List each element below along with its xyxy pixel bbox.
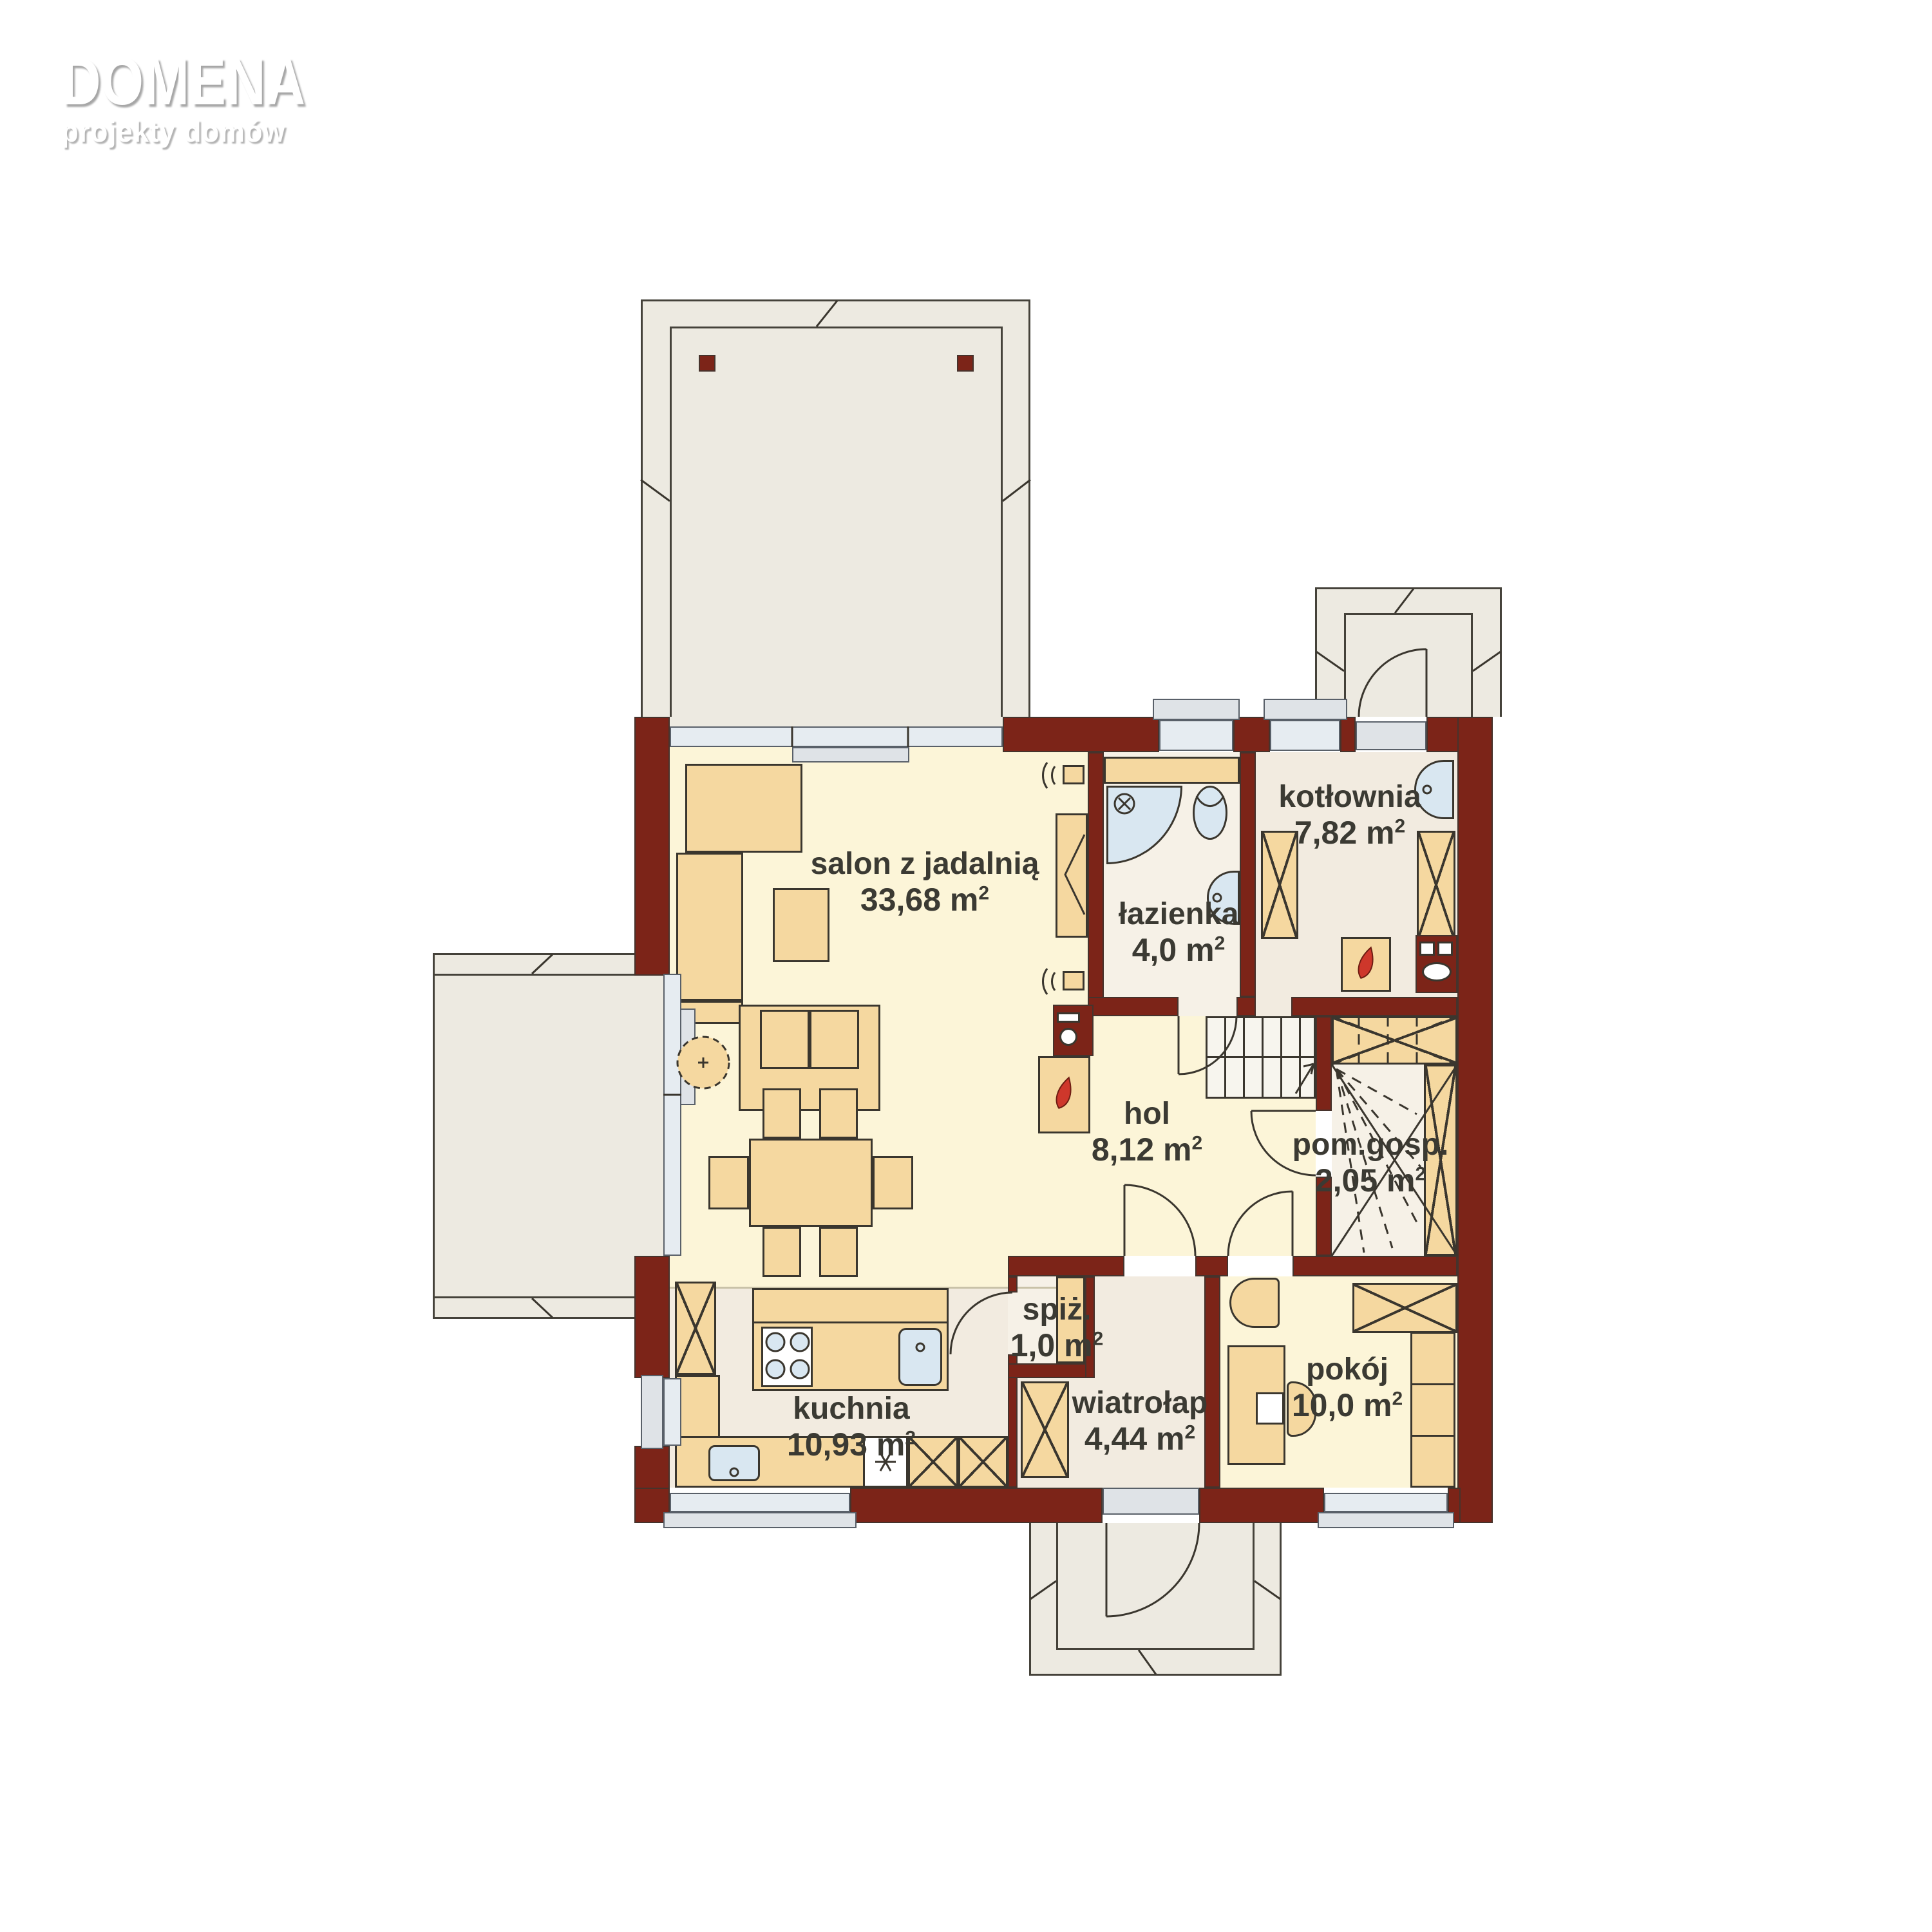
porch-entry-inner — [1056, 1523, 1255, 1650]
fireplace-hearth — [1038, 1056, 1090, 1133]
stairs-midline — [1206, 1056, 1316, 1058]
dining-chair — [819, 1227, 858, 1277]
flue-box — [1419, 942, 1435, 956]
window-sill — [641, 1375, 663, 1449]
wall-interior — [1316, 1016, 1332, 1111]
wall-exterior — [1340, 717, 1356, 752]
speaker — [1063, 971, 1084, 990]
wall-interior — [1195, 1256, 1228, 1276]
sofa-line — [1410, 1435, 1455, 1437]
brand-tagline: projekty domów — [61, 117, 344, 146]
flue-box — [1437, 942, 1453, 956]
dining-chair — [819, 1088, 858, 1139]
wall-interior — [1008, 1276, 1018, 1293]
terrace-door-patch — [670, 717, 1003, 727]
boiler-stove — [1341, 937, 1391, 992]
dining-chair — [873, 1156, 913, 1209]
room-label-salon: salon z jadalnią 33,68 m2 — [811, 847, 1039, 918]
window-sill — [1318, 1512, 1454, 1528]
wall-exterior — [850, 1488, 1103, 1523]
window-sliding-salon — [670, 726, 1003, 747]
window-sill — [1153, 699, 1240, 720]
window-pokoj — [1324, 1493, 1448, 1512]
toilet — [1193, 786, 1227, 840]
wall-interior — [1008, 1256, 1124, 1276]
room-label-kuchnia: kuchnia 10,93 m2 — [787, 1392, 916, 1463]
wall-exterior — [634, 1256, 670, 1378]
hob — [761, 1327, 813, 1387]
speaker — [1063, 765, 1084, 784]
fireplace-flue — [1059, 1028, 1077, 1046]
porch-boiler-entry-inner — [1344, 613, 1473, 717]
entry-threshold — [1103, 1488, 1199, 1515]
floor-plan: salon z jadalnią 33,68 m2 łazienka 4,0 m… — [0, 0, 1932, 1932]
terrace-side-line — [433, 1296, 634, 1298]
wall-interior — [1008, 1363, 1095, 1378]
room-label-wiatrolap: wiatrołap 4,44 m2 — [1072, 1386, 1208, 1457]
brand-name: DOMENA — [61, 48, 305, 115]
dining-chair — [708, 1156, 749, 1209]
window-sliding-panel — [680, 1009, 696, 1105]
terrace-post — [699, 355, 715, 372]
logo: DOMENA projekty domów — [61, 48, 359, 146]
wall-exterior — [1003, 717, 1159, 752]
window-kotlownia — [1270, 720, 1340, 751]
wall-exterior — [634, 717, 670, 976]
monitor — [1256, 1392, 1284, 1425]
bath-counter — [1104, 757, 1240, 784]
boiler-entry-threshold — [1356, 721, 1426, 750]
terrace-top-inner — [670, 327, 1003, 717]
room-label-kotlownia: kotłownia 7,82 m2 — [1278, 780, 1421, 851]
dining-table — [749, 1139, 873, 1227]
terrace-side-line — [433, 974, 634, 976]
terrace-post — [957, 355, 974, 372]
floor-wiatrolap — [1095, 1276, 1204, 1378]
wall-interior — [1293, 1256, 1457, 1276]
island-line — [752, 1321, 949, 1323]
wardrobe — [1021, 1381, 1069, 1478]
tv-cabinet — [1056, 813, 1088, 938]
water-tank — [1417, 831, 1455, 939]
dining-chair — [762, 1088, 801, 1139]
sofa-pokoj — [1410, 1332, 1455, 1488]
corner-sofa — [676, 853, 743, 1001]
wall-exterior — [1457, 717, 1493, 1523]
wall-interior — [1088, 752, 1104, 1005]
window-sill — [1264, 699, 1347, 720]
door-threshold-kotlownia — [1256, 997, 1291, 1016]
kitchen-cabinet — [958, 1436, 1008, 1488]
terrace-side — [433, 953, 634, 1319]
sink — [708, 1445, 760, 1481]
sofa-cushion — [760, 1010, 810, 1069]
fireplace-vent — [1057, 1012, 1080, 1023]
room-label-pokoj: pokój 10,0 m2 — [1292, 1352, 1403, 1423]
room-label-hol: hol 8,12 m2 — [1092, 1097, 1202, 1168]
sofa-line — [1410, 1383, 1455, 1385]
dining-chair — [762, 1227, 801, 1277]
room-label-lazienka: łazienka 4,0 m2 — [1119, 897, 1239, 968]
wardrobe — [1352, 1283, 1457, 1333]
stair-flight-upper — [1332, 1016, 1457, 1065]
armchair — [1229, 1278, 1280, 1328]
sink — [898, 1328, 942, 1386]
window-sill — [663, 1512, 857, 1528]
window-kuchnia-left — [663, 1378, 681, 1446]
terrace-door-patch — [634, 974, 663, 1256]
wall-exterior — [1233, 717, 1270, 752]
fridge — [675, 1282, 716, 1375]
wall-exterior — [1199, 1488, 1324, 1523]
wall-interior — [1236, 997, 1256, 1016]
window-sliding-terrace — [663, 974, 681, 1256]
room-label-spiz: spiż. 1,0 m2 — [1010, 1293, 1104, 1363]
door-threshold-lazienka — [1179, 997, 1236, 1016]
wall-interior — [1240, 752, 1256, 997]
sofa-cushion — [810, 1010, 859, 1069]
flue-round — [1422, 962, 1452, 981]
wall-interior — [1291, 997, 1457, 1016]
corner-sofa — [685, 764, 802, 853]
window-kuchnia-bottom — [670, 1493, 850, 1512]
window-sliding-panel — [792, 747, 909, 762]
room-label-pomgosp: pom.gosp. 2,05 m2 — [1293, 1128, 1449, 1198]
window-lazienka — [1159, 720, 1233, 751]
wall-interior — [1088, 997, 1179, 1016]
